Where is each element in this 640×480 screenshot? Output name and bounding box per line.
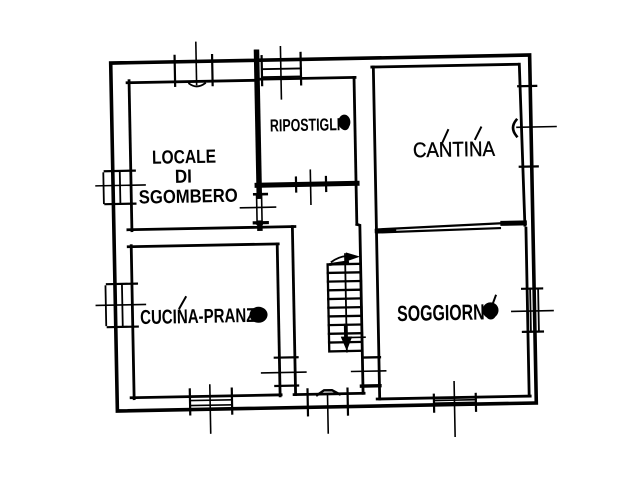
svg-text:RIPOSTIGLIO: RIPOSTIGLIO bbox=[270, 114, 350, 136]
svg-text:LOCALE: LOCALE bbox=[152, 147, 216, 169]
svg-text:DI: DI bbox=[175, 167, 192, 188]
svg-text:SGOMBERO: SGOMBERO bbox=[139, 186, 238, 209]
svg-text:SOGGIORNO: SOGGIORNO bbox=[397, 299, 497, 326]
svg-text:CUCINA-PRANZO: CUCINA-PRANZO bbox=[140, 305, 267, 329]
svg-text:CANTINA: CANTINA bbox=[413, 138, 495, 163]
